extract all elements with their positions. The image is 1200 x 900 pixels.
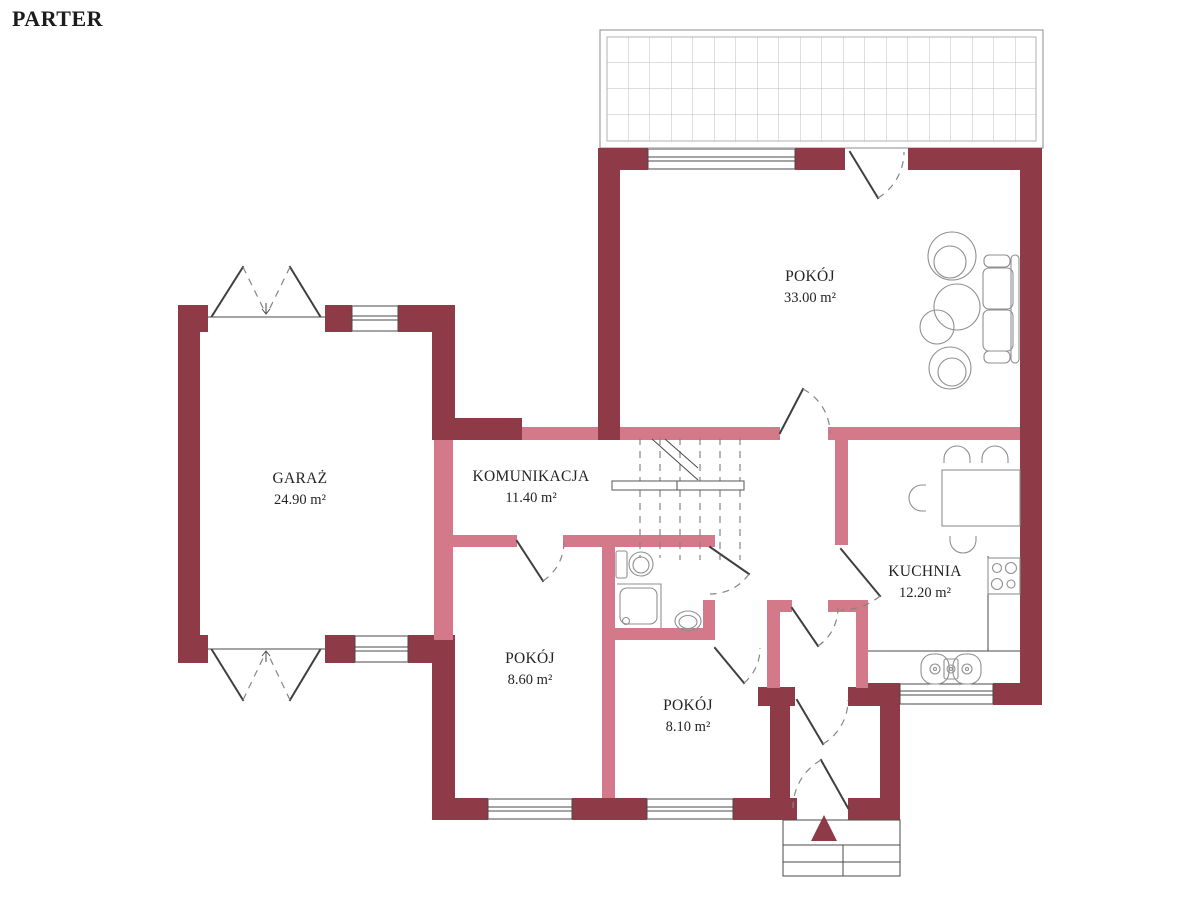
room-name: GARAŻ <box>210 468 390 490</box>
room-area: 8.60 m² <box>440 670 620 690</box>
entrance-steps <box>783 815 900 876</box>
floor-title: PARTER <box>12 6 103 32</box>
room-name: KUCHNIA <box>835 561 1015 583</box>
room-label-komunikacja: KOMUNIKACJA 11.40 m² <box>436 466 626 508</box>
living-room-furniture <box>920 232 1019 389</box>
room-label-pokoj-main: POKÓJ 33.00 m² <box>720 266 900 308</box>
entry-arrow-icon <box>811 815 837 841</box>
room-area: 24.90 m² <box>210 490 390 510</box>
floor-plan-drawing <box>0 0 1200 900</box>
floor-plan: PARTER POKÓJ 33.00 m² GARAŻ 24.90 m² KOM… <box>0 0 1200 900</box>
bathroom-fixtures <box>616 551 701 631</box>
room-label-garaz: GARAŻ 24.90 m² <box>210 468 390 510</box>
room-area: 12.20 m² <box>835 583 1015 603</box>
room-area: 11.40 m² <box>436 488 626 508</box>
room-name: POKÓJ <box>598 695 778 717</box>
room-label-pokoj-3: POKÓJ 8.10 m² <box>598 695 778 737</box>
room-name: POKÓJ <box>440 648 620 670</box>
room-area: 33.00 m² <box>720 288 900 308</box>
room-name: POKÓJ <box>720 266 900 288</box>
room-area: 8.10 m² <box>598 717 778 737</box>
room-label-pokoj-2: POKÓJ 8.60 m² <box>440 648 620 690</box>
room-name: KOMUNIKACJA <box>436 466 626 488</box>
terrace <box>600 30 1043 148</box>
room-label-kuchnia: KUCHNIA 12.20 m² <box>835 561 1015 603</box>
